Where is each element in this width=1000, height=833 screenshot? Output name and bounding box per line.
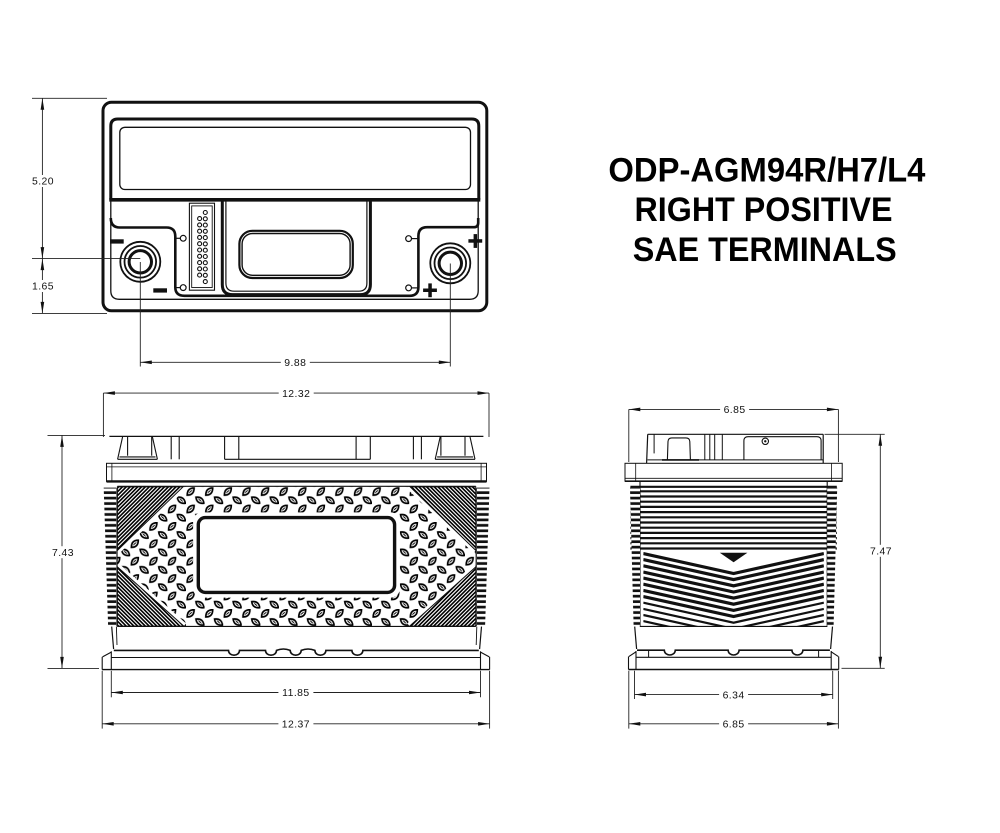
svg-text:7.47: 7.47 [870, 547, 892, 558]
svg-text:6.85: 6.85 [724, 405, 746, 416]
svg-text:12.37: 12.37 [282, 720, 310, 731]
svg-text:11.85: 11.85 [282, 688, 309, 699]
svg-text:12.32: 12.32 [282, 389, 310, 400]
svg-text:6.34: 6.34 [723, 690, 745, 701]
svg-text:9.88: 9.88 [284, 358, 306, 369]
svg-text:6.85: 6.85 [723, 720, 745, 731]
svg-text:5.20: 5.20 [32, 177, 54, 188]
svg-text:SAE TERMINALS: SAE TERMINALS [633, 231, 897, 269]
svg-text:RIGHT POSITIVE: RIGHT POSITIVE [635, 191, 893, 229]
svg-text:ODP-AGM94R/H7/L4: ODP-AGM94R/H7/L4 [608, 152, 925, 190]
svg-text:1.65: 1.65 [32, 282, 54, 293]
svg-text:7.43: 7.43 [52, 548, 74, 559]
